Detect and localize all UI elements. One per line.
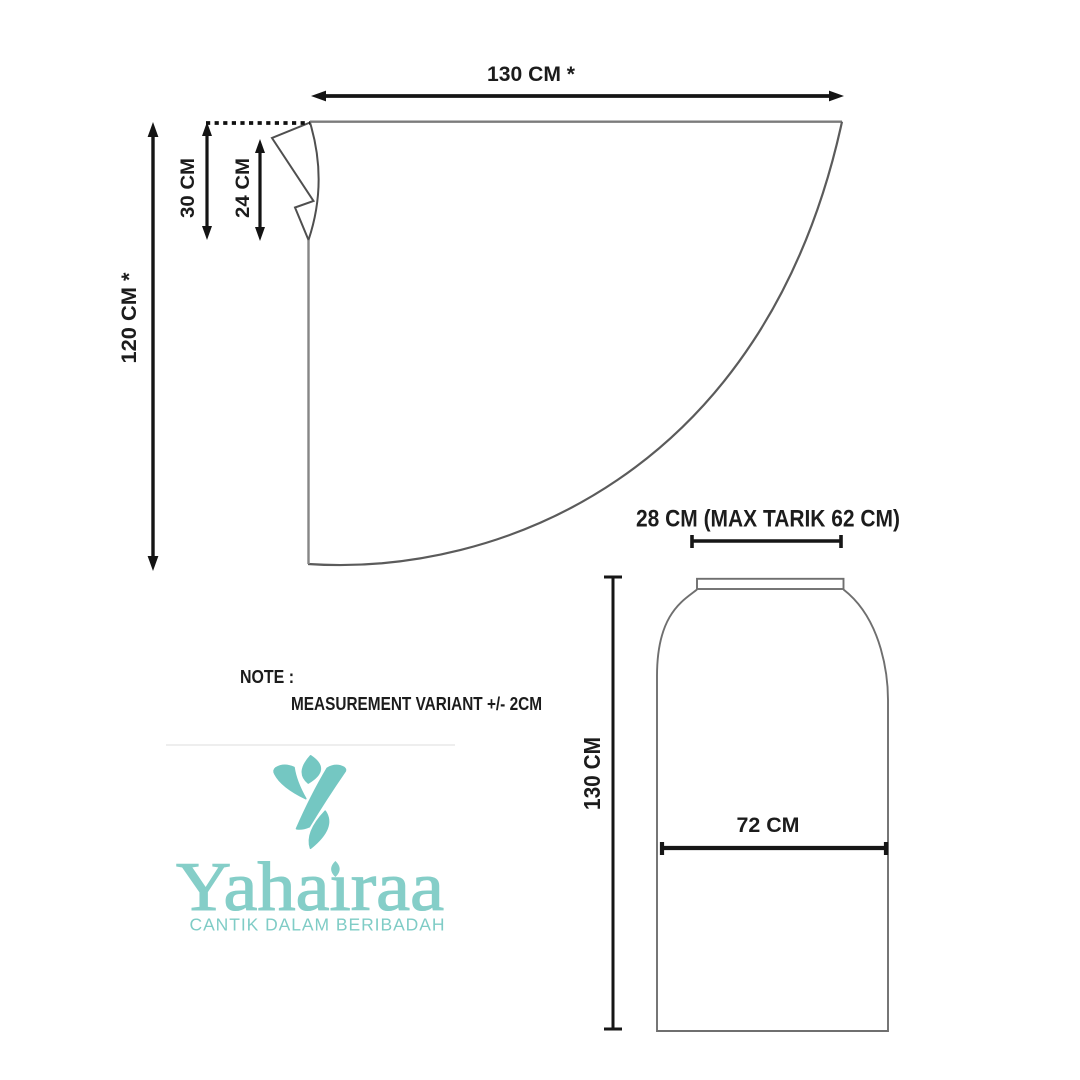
svg-text:24 CM: 24 CM (233, 158, 254, 218)
svg-text:CANTIK DALAM BERIBADAH: CANTIK DALAM BERIBADAH (190, 915, 445, 935)
svg-text:130 CM *: 130 CM * (487, 63, 576, 86)
svg-text:NOTE :: NOTE : (240, 667, 294, 687)
svg-text:30 CM: 30 CM (178, 158, 199, 218)
svg-text:28 CM (MAX TARIK 62 CM): 28 CM (MAX TARIK 62 CM) (636, 506, 900, 533)
svg-text:130 CM: 130 CM (579, 737, 605, 810)
svg-text:120 CM *: 120 CM * (118, 272, 141, 364)
svg-text:72 CM: 72 CM (737, 814, 800, 837)
svg-text:MEASUREMENT VARIANT +/- 2CM: MEASUREMENT VARIANT +/- 2CM (291, 694, 542, 714)
